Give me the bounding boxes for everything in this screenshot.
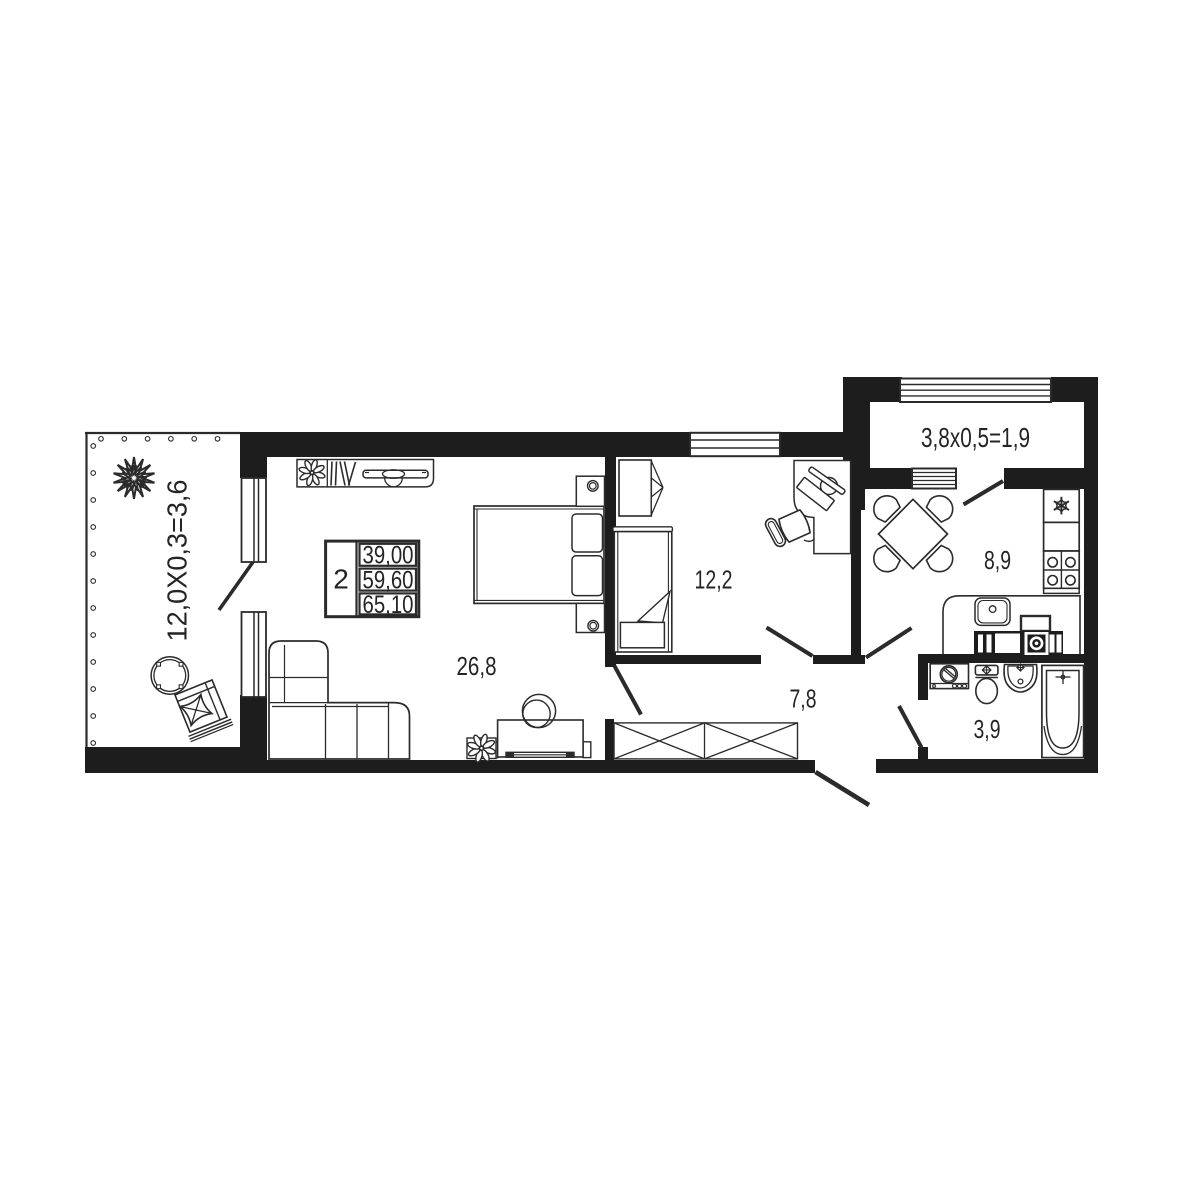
svg-text:65,10: 65,10	[363, 591, 414, 619]
svg-text:12,0X0,3=3,6: 12,0X0,3=3,6	[162, 480, 193, 642]
svg-text:8,9: 8,9	[984, 545, 1011, 575]
svg-text:7,8: 7,8	[790, 684, 817, 714]
svg-text:3,8x0,5=1,9: 3,8x0,5=1,9	[921, 422, 1030, 453]
svg-text:26,8: 26,8	[457, 651, 497, 681]
svg-text:12,2: 12,2	[695, 565, 733, 595]
svg-text:3,9: 3,9	[974, 714, 1001, 744]
svg-text:2: 2	[333, 564, 349, 595]
svg-text:39,00: 39,00	[363, 542, 414, 570]
